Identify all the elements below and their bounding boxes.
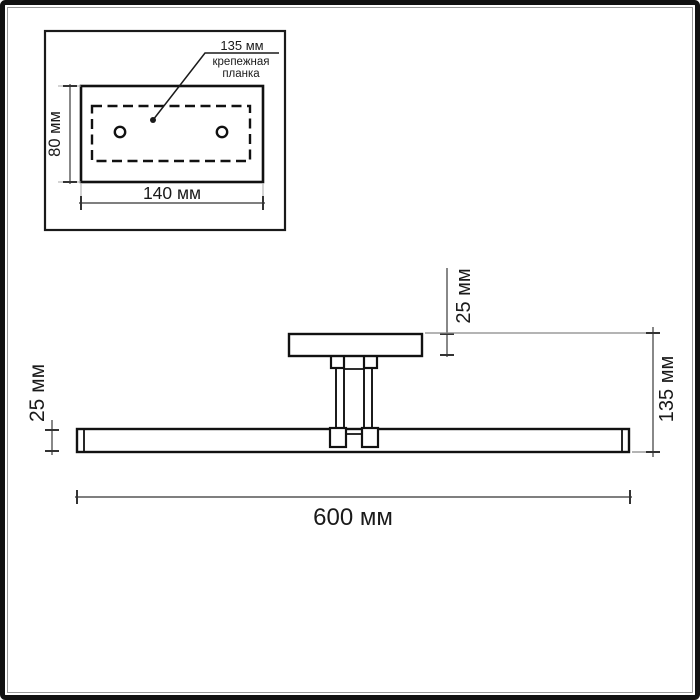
bracket-foot-right [362,428,378,447]
overall-height-label: 135 мм [657,354,675,424]
mounting-plank-annotation: крепежная планка [201,56,281,80]
screw-hole-right [217,127,227,137]
bracket-stem-right [364,366,372,433]
backplate-top-view-outline [81,86,263,182]
screw-hole-left [115,127,125,137]
canopy-thickness-label: 25 мм [454,266,472,326]
overall-length-label: 600 мм [253,505,453,530]
bracket-foot-left [330,428,346,447]
lamp-bar-outline [77,429,629,452]
drawing-linework [0,0,700,700]
bar-thickness-label: 25 мм [27,361,45,425]
inset-plate-width-label: 140 мм [122,184,222,202]
inset-plate-height-label: 80 мм [47,107,63,161]
technical-drawing-canvas: 135 мм крепежная планка 80 мм 140 мм 25 … [0,0,700,700]
inset-hole-spacing-label: 135 мм [205,39,279,53]
bracket-stem-left [336,366,344,433]
backplate-side-view-outline [289,334,422,356]
